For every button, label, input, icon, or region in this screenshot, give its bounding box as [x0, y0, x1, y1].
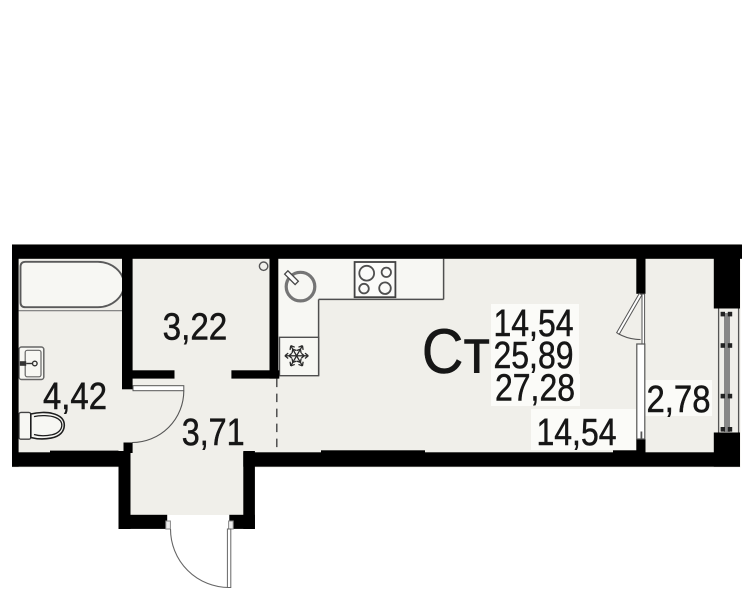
svg-text:4,42: 4,42 [43, 376, 107, 418]
svg-text:3,22: 3,22 [163, 307, 228, 349]
svg-text:27,28: 27,28 [495, 368, 575, 410]
svg-text:14,54: 14,54 [537, 412, 617, 454]
svg-text:3,71: 3,71 [182, 412, 245, 454]
svg-text:2,78: 2,78 [647, 379, 711, 421]
svg-text:Ст: Ст [422, 317, 490, 387]
